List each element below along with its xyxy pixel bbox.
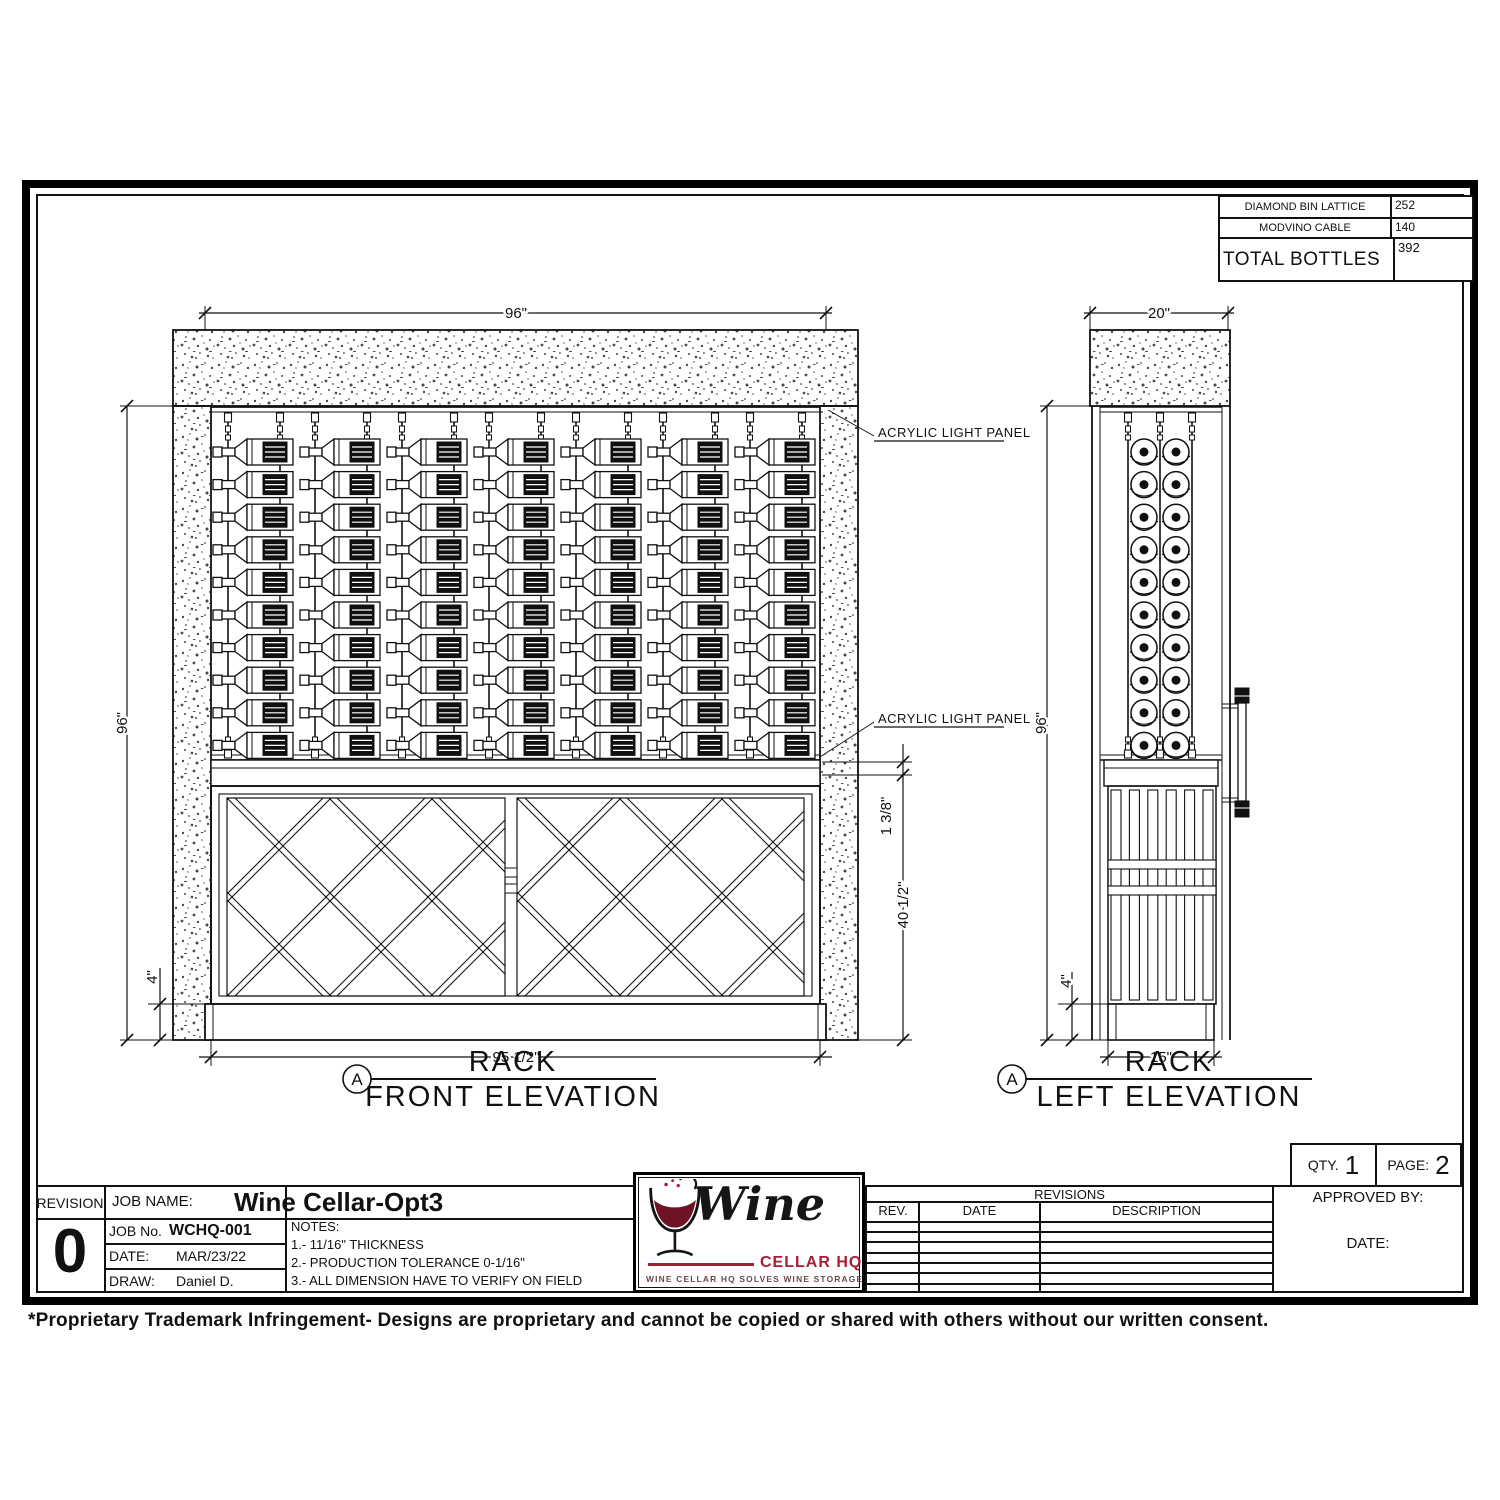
front-dim-base-height: 4" bbox=[144, 970, 161, 984]
logo-wordmark: Wine bbox=[694, 1177, 825, 1231]
logo-subtitle: CELLAR HQ bbox=[760, 1254, 862, 1272]
revision-row-line bbox=[865, 1252, 1274, 1254]
left-dim-base-height: 4" bbox=[1058, 974, 1075, 988]
job-name-value: Wine Cellar-Opt3 bbox=[234, 1187, 443, 1218]
revision-row-line bbox=[865, 1262, 1274, 1264]
summary-row-label: DIAMOND BIN LATTICE bbox=[1220, 197, 1392, 217]
note-3: 3.- ALL DIMENSION HAVE TO VERIFY ON FIEL… bbox=[291, 1273, 582, 1288]
front-subtitle: FRONT ELEVATION bbox=[365, 1081, 661, 1113]
acrylic-light-panel-label-top: ACRYLIC LIGHT PANEL bbox=[878, 425, 1031, 440]
date-label: DATE: bbox=[109, 1248, 149, 1264]
left-subtitle: LEFT ELEVATION bbox=[1037, 1081, 1302, 1113]
divider bbox=[865, 1221, 1274, 1223]
approved-date-label: DATE: bbox=[1272, 1235, 1464, 1252]
left-dim-height-left: 96" bbox=[1033, 712, 1050, 734]
logo-tagline: Wine Cellar HQ Solves Wine Storage bbox=[646, 1274, 863, 1284]
qty-label: QTY. bbox=[1308, 1157, 1339, 1173]
front-cable-rack bbox=[211, 407, 820, 760]
divider bbox=[104, 1268, 287, 1270]
note-2: 2.- PRODUCTION TOLERANCE 0-1/16" bbox=[291, 1255, 525, 1270]
summary-total-value: 392 bbox=[1395, 239, 1472, 280]
title-block: REVISION 0 JOB NAME: Wine Cellar-Opt3 JO… bbox=[36, 1143, 1464, 1293]
front-dim-width-top: 96" bbox=[505, 305, 527, 322]
draw-value: Daniel D. bbox=[176, 1273, 234, 1289]
left-wall-hatch bbox=[1090, 330, 1230, 406]
left-dim-width-top: 20" bbox=[1148, 305, 1170, 322]
summary-row-value: 252 bbox=[1392, 197, 1472, 217]
job-no-label: JOB No. bbox=[109, 1223, 162, 1239]
left-title: RACK bbox=[1125, 1046, 1214, 1078]
logo-rule bbox=[648, 1263, 754, 1266]
drawing-sheet: 96" 96" 4" 95 1/2" 1 3/8" 40 1/2" ACRYLI… bbox=[0, 0, 1500, 1500]
left-detail-marker: A bbox=[1006, 1070, 1018, 1089]
notes-header: NOTES: bbox=[291, 1219, 339, 1234]
front-dim-gap: 1 3/8" bbox=[878, 797, 895, 836]
date-value: MAR/23/22 bbox=[176, 1248, 246, 1264]
divider bbox=[1039, 1201, 1041, 1293]
front-dim-cabinet-height: 40 1/2" bbox=[895, 881, 912, 928]
table-row: DIAMOND BIN LATTICE 252 bbox=[1220, 197, 1472, 219]
revisions-header: REVISIONS bbox=[865, 1187, 1274, 1202]
table-row: TOTAL BOTTLES 392 bbox=[1220, 239, 1472, 280]
qty-cell: QTY. 1 bbox=[1292, 1145, 1377, 1185]
revision-row-line bbox=[865, 1272, 1274, 1274]
page-cell: PAGE: 2 bbox=[1377, 1145, 1460, 1185]
left-elevation-rack bbox=[1092, 406, 1249, 1040]
front-dim-height-left: 96" bbox=[114, 712, 131, 734]
revisions-col-description: DESCRIPTION bbox=[1041, 1203, 1272, 1218]
divider bbox=[104, 1185, 106, 1293]
approved-by-label: APPROVED BY: bbox=[1272, 1189, 1464, 1206]
front-detail-marker: A bbox=[351, 1070, 363, 1089]
page-value: 2 bbox=[1435, 1150, 1449, 1181]
page-label: PAGE: bbox=[1387, 1157, 1429, 1173]
summary-row-label: MODVINO CABLE bbox=[1220, 219, 1392, 237]
drawing-graphics bbox=[0, 306, 1249, 1066]
revisions-col-date: DATE bbox=[920, 1203, 1039, 1218]
table-row: MODVINO CABLE 140 bbox=[1220, 219, 1472, 239]
revision-number: 0 bbox=[36, 1215, 104, 1289]
front-title: RACK bbox=[469, 1046, 558, 1078]
note-1: 1.- 11/16" THICKNESS bbox=[291, 1237, 424, 1252]
revision-row-line bbox=[865, 1231, 1274, 1233]
revisions-col-rev: REV. bbox=[868, 1203, 918, 1218]
summary-row-value: 140 bbox=[1392, 219, 1472, 237]
company-logo: Wine CELLAR HQ Wine Cellar HQ Solves Win… bbox=[633, 1172, 865, 1293]
draw-label: DRAW: bbox=[109, 1273, 155, 1289]
divider bbox=[104, 1243, 287, 1245]
proprietary-notice: *Proprietary Trademark Infringement- Des… bbox=[28, 1310, 1476, 1332]
acrylic-light-panel-label-bottom: ACRYLIC LIGHT PANEL bbox=[878, 711, 1031, 726]
bottle-summary-table: DIAMOND BIN LATTICE 252 MODVINO CABLE 14… bbox=[1218, 195, 1474, 282]
summary-total-label: TOTAL BOTTLES bbox=[1220, 239, 1395, 280]
job-no-value: WCHQ-001 bbox=[169, 1222, 252, 1240]
revision-row-line bbox=[865, 1241, 1274, 1243]
revision-row-line bbox=[865, 1283, 1274, 1285]
qty-value: 1 bbox=[1345, 1150, 1359, 1181]
divider bbox=[918, 1201, 920, 1293]
qty-page-box: QTY. 1 PAGE: 2 bbox=[1290, 1143, 1462, 1187]
job-name-label: JOB NAME: bbox=[112, 1193, 193, 1210]
revision-header: REVISION bbox=[36, 1195, 104, 1211]
